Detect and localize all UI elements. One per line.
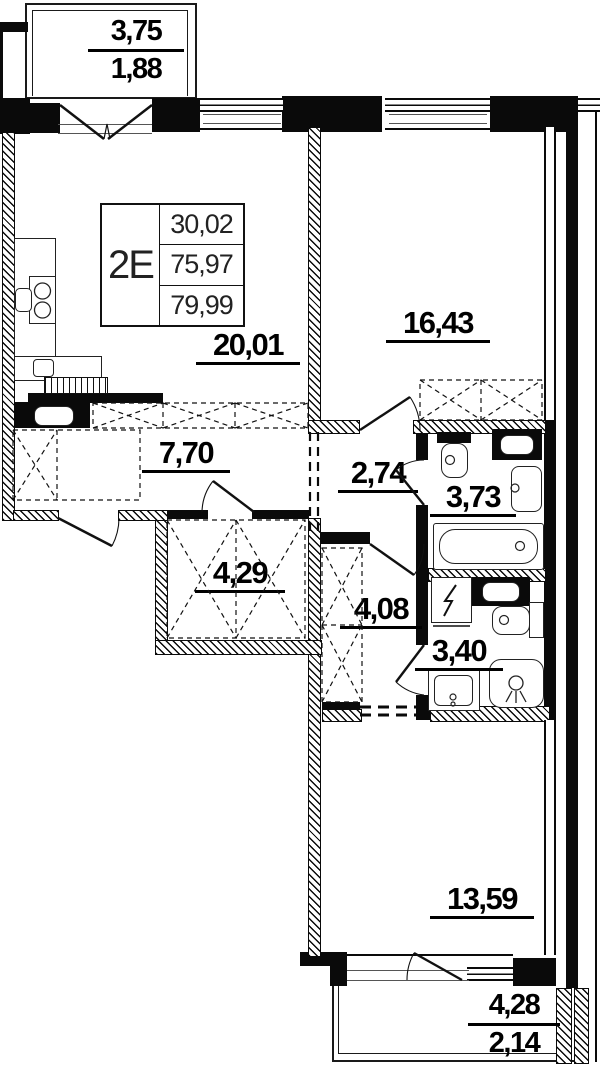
wall: [28, 103, 60, 133]
unit-area-living: 30,02: [160, 205, 243, 244]
zone-boundary-dashed: [310, 432, 318, 532]
window: [200, 98, 283, 112]
wall: [490, 96, 578, 132]
wall: [0, 98, 30, 134]
unit-area-total: 75,97: [160, 244, 243, 284]
bathtub-inner: [439, 529, 538, 564]
pier-hatched: [574, 988, 589, 1064]
window: [467, 967, 513, 981]
door-threshold: [58, 124, 152, 134]
window: [385, 98, 490, 112]
room-label-bathroom: 3,73: [430, 481, 516, 517]
wall-hatched: [322, 709, 362, 722]
toilet-tank: [529, 602, 544, 638]
radiator: [44, 377, 108, 394]
wall: [416, 432, 428, 460]
kitchen-sink: [33, 359, 54, 377]
wardrobe-zone: [420, 380, 542, 420]
door: [202, 481, 254, 512]
toilet-bowl: [492, 606, 530, 635]
room-label-bedroom-top: 16,43: [386, 307, 490, 343]
toilet-tank: [437, 432, 471, 443]
balcony-top-label: 3,75 1,88: [88, 17, 184, 87]
kitchen-sink: [15, 288, 32, 312]
party-wall: [544, 127, 556, 420]
wall: [416, 505, 428, 573]
wall: [0, 22, 28, 32]
wall: [252, 510, 309, 519]
water-heater: [431, 577, 472, 623]
cabinet-front: [34, 406, 74, 426]
wardrobe-zone: [93, 403, 308, 428]
balcony-top-reduced-area: 1,88: [88, 49, 184, 87]
washer-drum: [482, 582, 520, 602]
neighbor-wall: [566, 96, 578, 988]
wc-sink: [434, 675, 473, 706]
wall-hatched: [13, 510, 59, 521]
wall: [163, 510, 208, 519]
room-label-hall: 4,08: [340, 593, 422, 629]
wall: [152, 98, 200, 132]
washer-drum: [500, 435, 534, 455]
unit-areas: 30,02 75,97 79,99: [160, 205, 243, 325]
wall-inner-edge: [347, 954, 513, 956]
balcony-bottom-label: 4,28 2,14: [468, 991, 560, 1061]
room-label-corridor: 2,74: [338, 457, 418, 493]
entrance-door: [58, 518, 119, 546]
toilet-bowl: [441, 443, 468, 478]
wall: [330, 952, 347, 986]
room-label-living: 20,01: [196, 329, 300, 365]
room-label-hallway: 7,70: [142, 437, 230, 473]
unit-label: 2E: [102, 205, 160, 325]
room-label-wc: 3,40: [415, 635, 503, 671]
wall-hatched: [155, 640, 322, 655]
wall-hatched: [155, 518, 168, 654]
wall-hatched: [118, 510, 168, 521]
wardrobe-zone: [13, 430, 140, 500]
room-label-bedroom-bottom: 13,59: [430, 883, 534, 919]
wall: [282, 96, 382, 132]
window-sill: [203, 114, 281, 124]
balcony-top-full-area: 3,75: [88, 17, 184, 49]
stove: [29, 276, 56, 324]
balcony-bottom-full-area: 4,28: [468, 991, 560, 1023]
open-doorway-dashed: [360, 707, 416, 715]
wall: [513, 958, 556, 986]
wall-inner-edge: [385, 128, 490, 130]
party-wall: [544, 720, 556, 955]
interior-wall-hatched: [308, 127, 321, 424]
wall-inner-edge: [200, 128, 283, 130]
room-label-closet: 4,29: [195, 557, 285, 593]
unit-area-overall: 79,99: [160, 285, 243, 325]
door: [360, 397, 420, 430]
balcony-bottom-reduced-area: 2,14: [468, 1023, 560, 1061]
neighbor-line: [595, 110, 597, 1062]
wall-hatched: [308, 518, 321, 957]
floor-plan: 2E 30,02 75,97 79,99 20,01 16,43 7,70 2,…: [0, 0, 600, 1069]
wall: [320, 532, 370, 544]
door-threshold: [347, 970, 469, 981]
unit-table: 2E 30,02 75,97 79,99: [100, 203, 245, 327]
neighbor-window: [578, 98, 600, 112]
wall-hatched: [308, 420, 360, 434]
window-sill: [389, 114, 487, 124]
